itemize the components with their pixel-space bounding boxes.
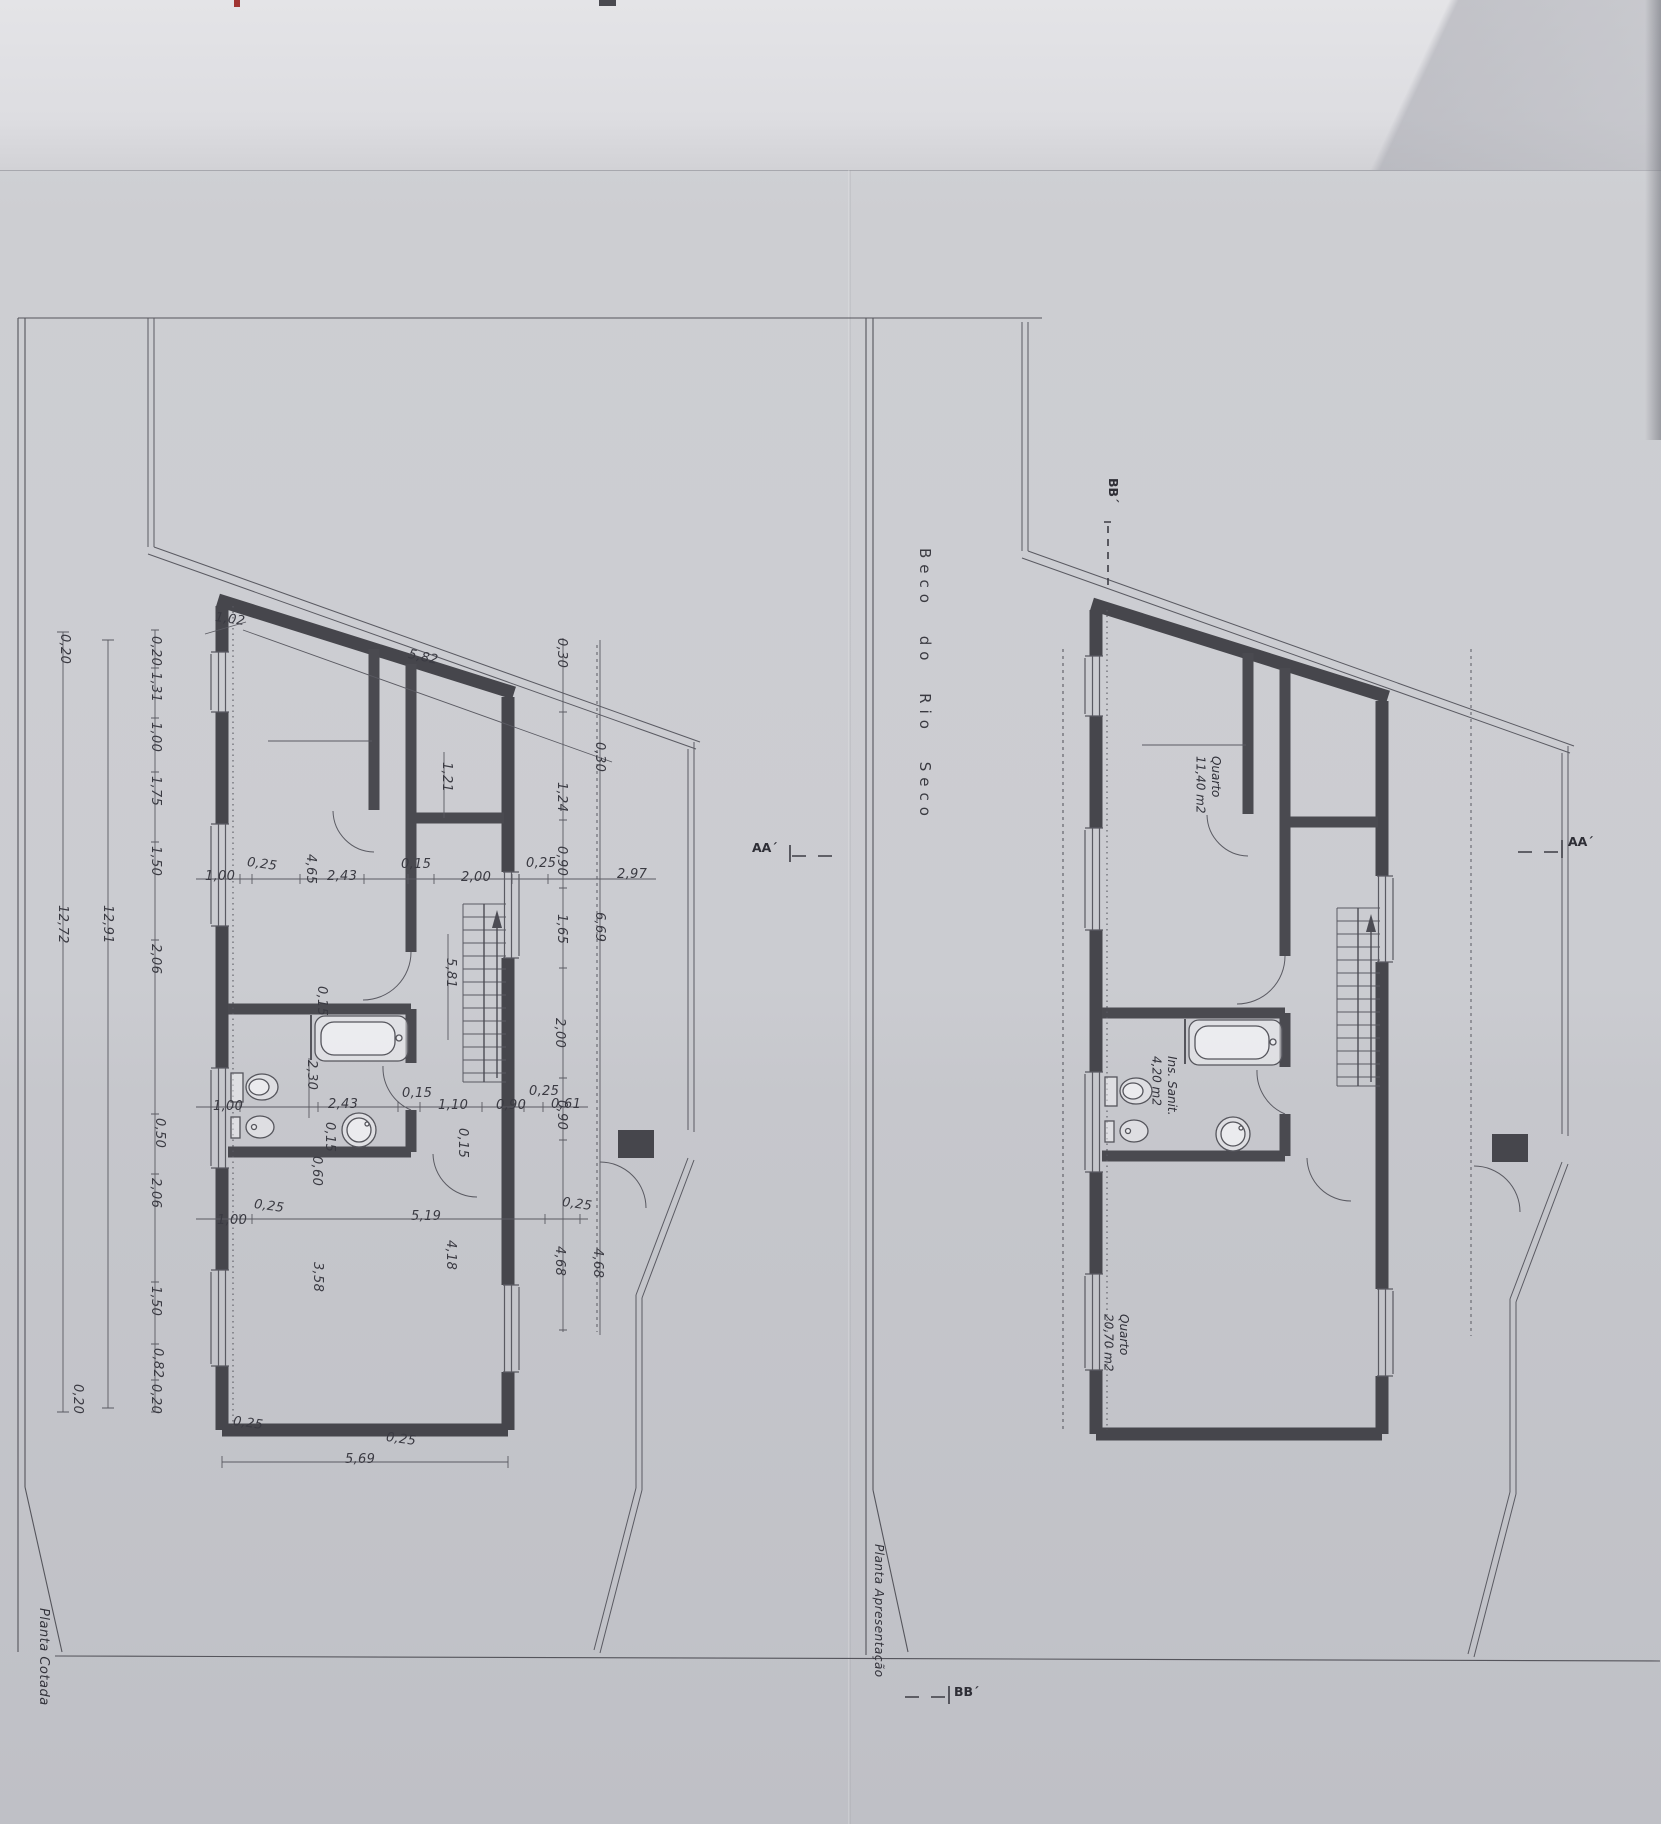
dim-label: 5,81 [443,958,458,988]
dim-label: 0,30 [592,742,607,772]
room-area: 20,70 m2 [1100,1314,1116,1372]
dim-label: 1,10 [438,1098,468,1113]
dim-label: 12,72 [55,905,70,944]
dim-label: 12,91 [100,905,115,944]
section-bb-bottom-label: BB´ [954,1684,979,1699]
dim-label: 1,00 [217,1213,247,1228]
dim-label: 2,06 [148,1178,163,1208]
dim-label: 0,60 [309,1156,324,1186]
dim-label: 0,15 [402,1086,432,1101]
room-area: 4,20 m2 [1148,1056,1164,1115]
dim-label: 0,50 [152,1118,167,1148]
dim-label: 1,00 [148,722,163,752]
room-name: Quarto [1208,756,1224,814]
dim-label: 2,43 [328,1097,358,1112]
dim-label: 5,19 [411,1209,441,1224]
dim-label: 0,15 [322,1122,337,1152]
dim-label: 0,61 [551,1097,581,1112]
room-name: Ins. Sanit. [1164,1056,1180,1115]
dim-label: 1,21 [439,762,454,792]
dim-label: 0,90 [496,1098,526,1113]
dim-label: 4,18 [443,1240,458,1270]
dim-label: 2,97 [617,867,647,882]
dim-label: 1,75 [148,776,163,806]
section-aa-left-label: AA´ [752,840,778,855]
dim-label: 2,30 [304,1060,319,1090]
scanned-floorplan-photo: { "sheet": { "street": "Beco do Rio Seco… [0,0,1661,1824]
sheet-frame [18,318,1660,1661]
street-name-label: Beco do Rio Seco [916,548,934,822]
dim-label: 0,82 [150,1348,165,1378]
dim-label: 0,20 [148,1384,163,1414]
dim-label: 0,20 [70,1384,85,1414]
dim-label: 4,68 [552,1246,567,1276]
dim-label: 1,00 [213,1099,243,1114]
dim-label: 3,58 [310,1262,325,1292]
dim-label: 2,00 [552,1018,567,1048]
dim-label: 1,50 [148,846,163,876]
dim-label: 0,15 [314,986,329,1016]
room-label-quarto-2: Quarto 20,70 m2 [1100,1314,1131,1372]
dim-label: 1,24 [554,782,569,812]
room-area: 11,40 m2 [1192,756,1208,814]
room-name: Quarto [1116,1314,1132,1372]
dim-label: 0,20 [57,634,72,664]
dim-label: 0,20 [148,636,163,666]
dim-label: 1,50 [148,1286,163,1316]
left-plan-title: Planta Cotada [36,1608,51,1706]
right-plan-title: Planta Apresentação [872,1544,886,1678]
dim-label: 1,31 [148,672,163,702]
dim-label: 6,69 [592,912,607,942]
room-label-sanit: Ins. Sanit. 4,20 m2 [1148,1056,1179,1115]
room-label-quarto-1: Quarto 11,40 m2 [1192,756,1223,814]
dim-label: 5,69 [345,1452,375,1467]
dim-label: 1,65 [554,914,569,944]
section-bb-top-label: BB´ [1106,478,1121,503]
dim-label: 0,15 [401,857,431,872]
dim-label: 0,90 [554,846,569,876]
dim-label: 0,25 [526,856,556,871]
dim-label: 2,06 [148,944,163,974]
section-aa-right-label: AA´ [1568,834,1594,849]
dim-label: 2,43 [327,869,357,884]
dim-label: 1,00 [205,869,235,884]
dim-label: 2,00 [461,870,491,885]
dim-label: 4,65 [303,854,318,884]
dim-label: 0,15 [455,1128,470,1158]
dim-label: 4,68 [590,1248,605,1278]
dim-label: 0,30 [554,638,569,668]
floorplan-line-drawing [0,0,1661,1824]
